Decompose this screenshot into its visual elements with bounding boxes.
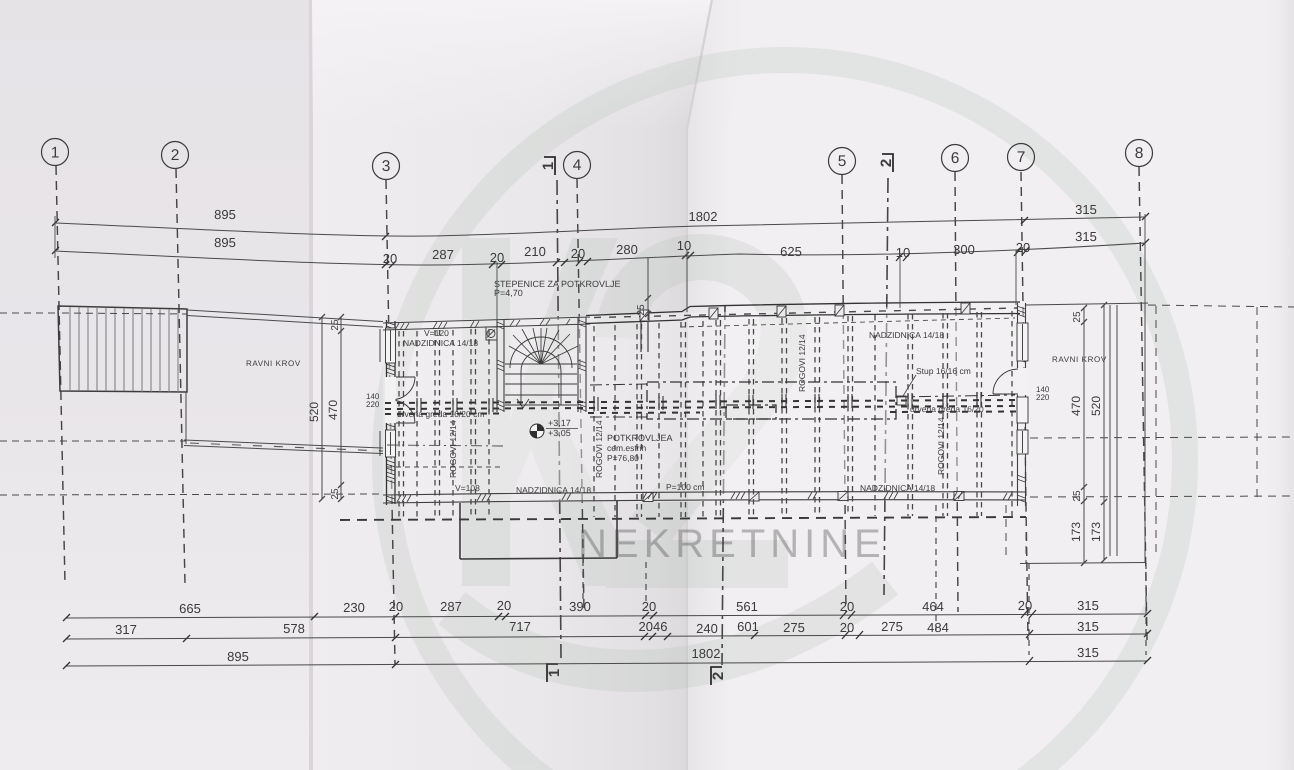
svg-text:895: 895 [214, 207, 236, 222]
svg-text:drvena greda 16/20 cm: drvena greda 16/20 cm [397, 409, 484, 419]
svg-text:20: 20 [571, 246, 585, 261]
svg-text:ROGOVI 12/14: ROGOVI 12/14 [936, 417, 946, 475]
svg-text:275: 275 [881, 619, 903, 634]
svg-text:390: 390 [569, 599, 591, 614]
svg-text:280: 280 [616, 242, 638, 257]
svg-text:20: 20 [497, 598, 511, 613]
svg-text:287: 287 [432, 247, 454, 262]
svg-text:315: 315 [1075, 229, 1097, 244]
svg-text:1: 1 [51, 145, 60, 162]
svg-text:20: 20 [840, 599, 854, 614]
svg-text:220: 220 [1036, 393, 1050, 402]
svg-text:665: 665 [179, 601, 201, 616]
svg-text:220: 220 [366, 400, 380, 409]
svg-text:NEKRETNINE: NEKRETNINE [578, 522, 886, 566]
svg-text:6: 6 [951, 150, 960, 167]
svg-text:520: 520 [307, 402, 321, 422]
svg-text:8: 8 [1135, 145, 1144, 162]
svg-text:173: 173 [1069, 522, 1083, 542]
svg-text:POTKROVLJEA: POTKROVLJEA [607, 433, 673, 443]
svg-text:25: 25 [330, 488, 341, 500]
svg-text:300: 300 [953, 242, 975, 257]
svg-text:315: 315 [1077, 598, 1099, 613]
svg-text:20: 20 [1016, 240, 1030, 255]
svg-text:NADZIDNICA 14/18: NADZIDNICA 14/18 [403, 338, 478, 348]
svg-text:25: 25 [636, 304, 647, 316]
svg-text:578: 578 [283, 621, 305, 636]
svg-text:315: 315 [1077, 645, 1099, 660]
svg-text:315: 315 [1077, 619, 1099, 634]
svg-text:210: 210 [524, 244, 546, 259]
svg-text:470: 470 [1069, 396, 1083, 416]
svg-text:25: 25 [1072, 311, 1083, 323]
svg-text:25: 25 [330, 319, 341, 331]
svg-text:4: 4 [573, 157, 582, 174]
svg-text:NADZIDNICA 14/18: NADZIDNICA 14/18 [869, 330, 944, 340]
svg-text:NADZIDNICA 14/18: NADZIDNICA 14/18 [860, 483, 935, 493]
svg-text:V=108: V=108 [455, 483, 480, 493]
svg-text:315: 315 [1075, 202, 1097, 217]
svg-text:230: 230 [343, 600, 365, 615]
svg-text:520: 520 [1089, 396, 1103, 416]
svg-text:RAVNI KROV: RAVNI KROV [1052, 355, 1107, 364]
svg-text:173: 173 [1089, 522, 1103, 542]
svg-text:287: 287 [440, 599, 462, 614]
svg-text:20: 20 [383, 251, 397, 266]
svg-text:drvena greda 16/20: drvena greda 16/20 [910, 404, 984, 414]
svg-text:10: 10 [896, 245, 910, 260]
svg-text:25: 25 [1072, 490, 1083, 502]
svg-text:1802: 1802 [689, 209, 718, 224]
svg-text:20: 20 [642, 599, 656, 614]
svg-text:470: 470 [326, 400, 340, 420]
svg-text:717: 717 [509, 619, 531, 634]
svg-text:1802: 1802 [692, 646, 721, 661]
svg-text:ROGOVI 12/14: ROGOVI 12/14 [797, 334, 807, 392]
svg-text:895: 895 [214, 235, 236, 250]
svg-text:P=4,70: P=4,70 [494, 288, 523, 298]
svg-text:20: 20 [1018, 598, 1032, 613]
svg-text:464: 464 [922, 599, 944, 614]
svg-text:2046: 2046 [639, 619, 668, 634]
svg-text:cem.estrih: cem.estrih [607, 443, 646, 453]
svg-text:1: 1 [546, 669, 563, 677]
svg-text:NADZIDNICA 14/18: NADZIDNICA 14/18 [516, 485, 591, 495]
svg-text:20: 20 [389, 599, 403, 614]
svg-text:P=100 cm: P=100 cm [666, 482, 705, 492]
svg-text:+3,05: +3,05 [548, 428, 571, 438]
svg-text:561: 561 [736, 599, 758, 614]
svg-text:895: 895 [227, 649, 249, 664]
svg-text:2: 2 [171, 147, 180, 164]
svg-text:484: 484 [927, 620, 949, 635]
svg-text:V=120: V=120 [424, 328, 449, 338]
svg-text:ROGOVI 12/14: ROGOVI 12/14 [448, 420, 458, 478]
svg-text:3: 3 [382, 158, 391, 175]
svg-text:ROGOVI 12/14: ROGOVI 12/14 [594, 420, 604, 478]
svg-text:2: 2 [710, 672, 727, 680]
svg-text:+3,17: +3,17 [548, 418, 571, 428]
svg-text:317: 317 [115, 622, 137, 637]
svg-text:10: 10 [677, 238, 691, 253]
svg-text:P=76,80: P=76,80 [607, 453, 639, 463]
svg-text:7: 7 [1017, 149, 1026, 166]
svg-text:5: 5 [838, 153, 847, 170]
svg-text:275: 275 [783, 620, 805, 635]
svg-text:20: 20 [840, 620, 854, 635]
svg-text:Stup 16/16 cm: Stup 16/16 cm [916, 366, 971, 376]
svg-text:601: 601 [737, 619, 759, 634]
svg-text:RAVNI KROV: RAVNI KROV [246, 359, 301, 368]
svg-text:625: 625 [780, 244, 802, 259]
svg-text:240: 240 [696, 621, 718, 636]
